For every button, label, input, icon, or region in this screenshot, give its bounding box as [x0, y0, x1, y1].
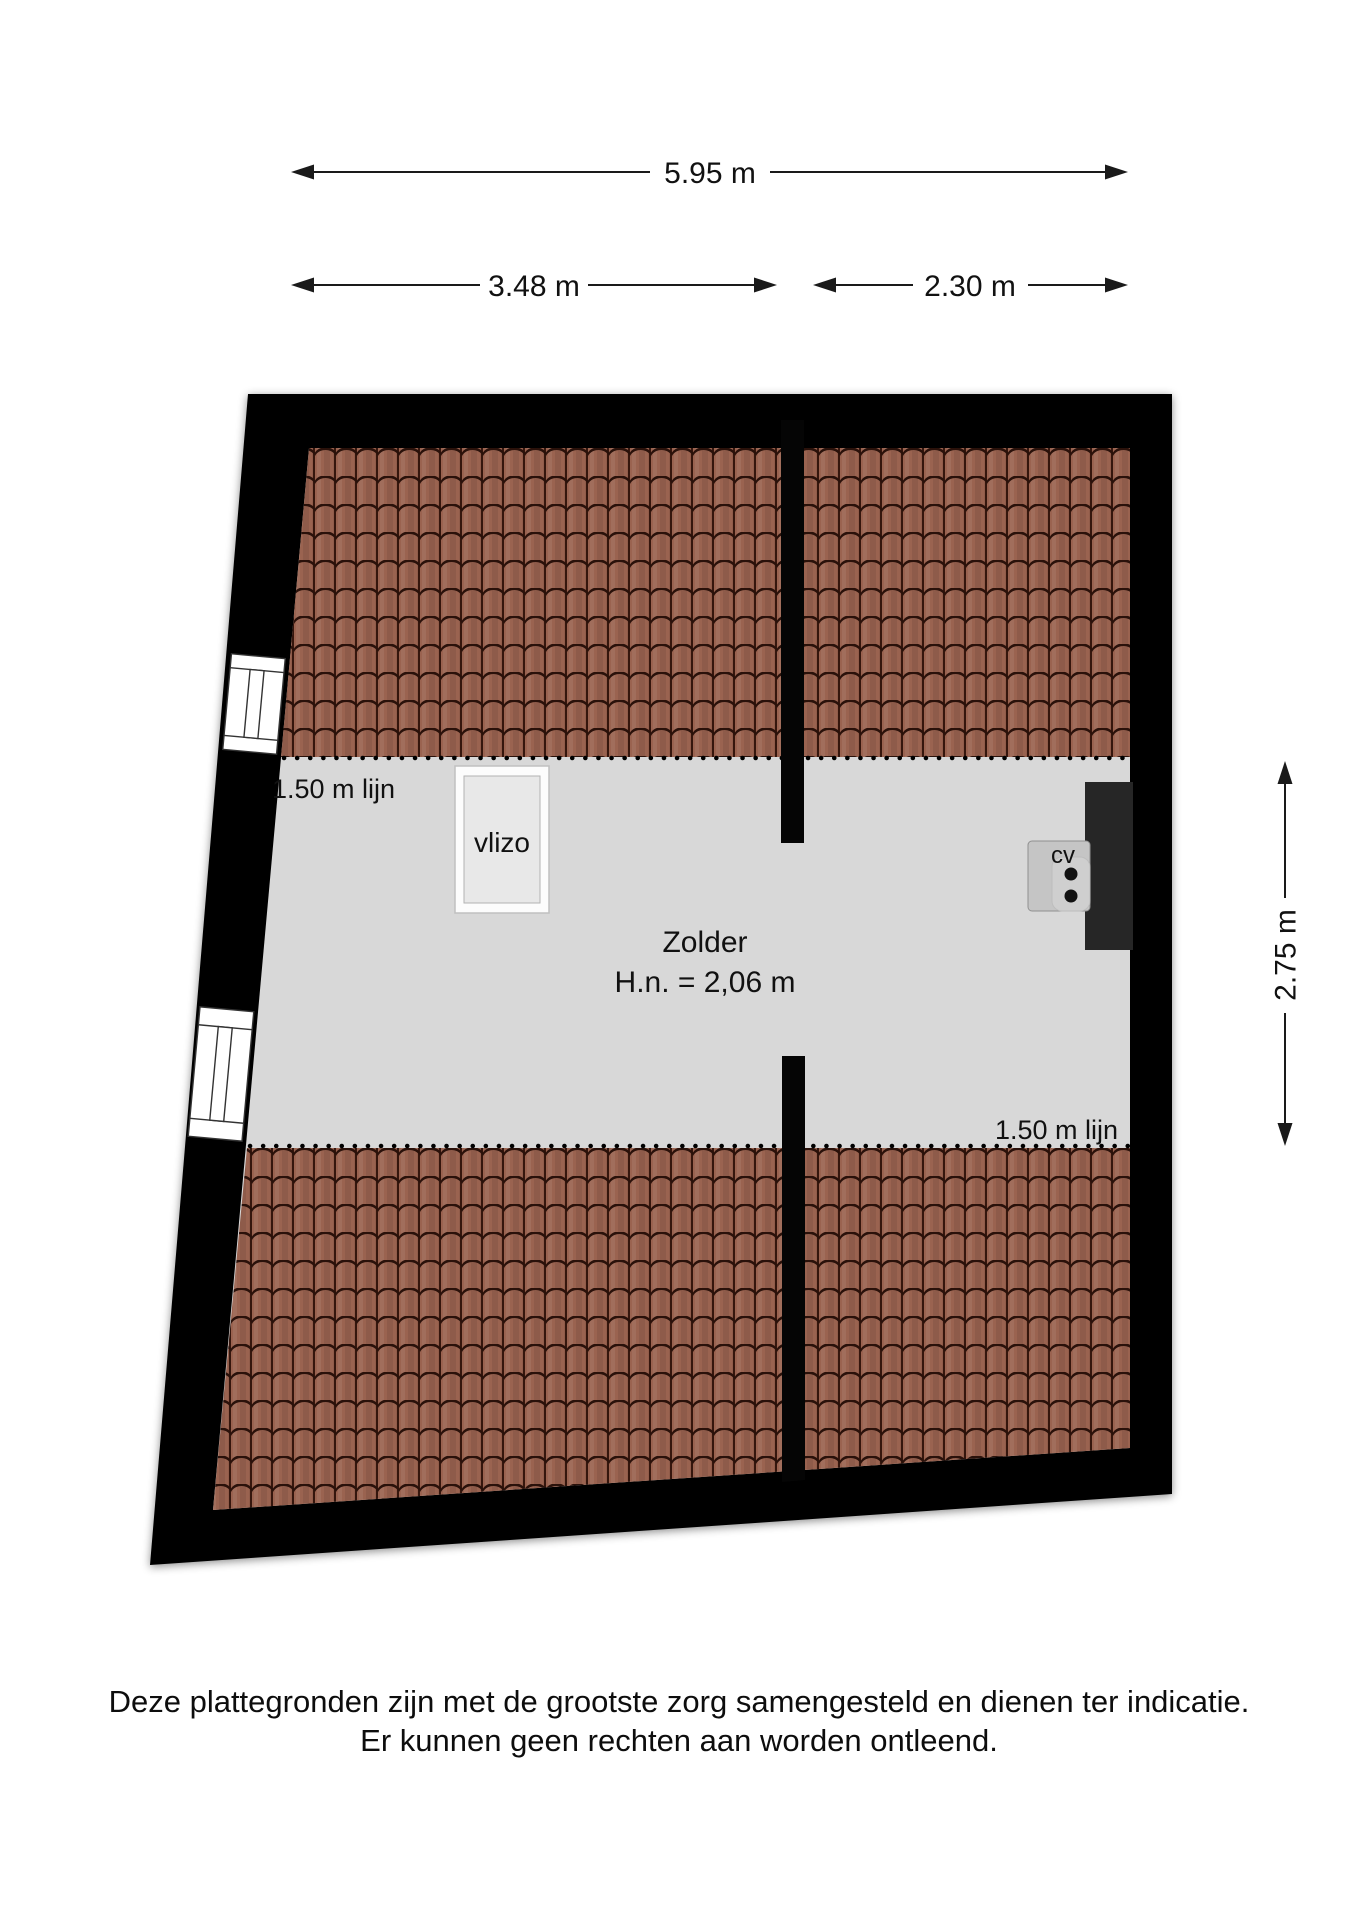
arrowhead-left-icon: [291, 165, 314, 180]
vlizo-label: vlizo: [474, 827, 530, 858]
cv-knob-icon: [1065, 890, 1078, 903]
divider-wall-upper: [781, 420, 804, 843]
dimension-height-right-label: 2.75 m: [1270, 909, 1303, 1001]
arrowhead-left-icon: [813, 278, 836, 293]
footer-disclaimer-line1: Deze plattegronden zijn met de grootste …: [109, 1684, 1250, 1719]
window-lower: [188, 1007, 254, 1141]
room-name-label: Zolder: [662, 926, 747, 959]
cv-label: cv: [1051, 842, 1075, 869]
arrowhead-down-icon: [1278, 1123, 1293, 1146]
cv-knob-icon: [1065, 868, 1078, 881]
arrowhead-left-icon: [291, 278, 314, 293]
knee-wall-label-left: 1.50 m lijn: [272, 774, 395, 804]
knee-wall-label-right: 1.50 m lijn: [995, 1115, 1118, 1145]
dimension-width-left-label: 3.48 m: [488, 270, 580, 303]
arrowhead-right-icon: [1105, 278, 1128, 293]
floor-plan: 5.95 m 3.48 m 2.30 m 2.75 m vlizo: [0, 0, 1358, 1920]
window-upper: [223, 654, 285, 754]
dimension-width-right-label: 2.30 m: [924, 270, 1016, 303]
roof-area-upper: [281, 448, 1130, 757]
roof-area-lower: [213, 1148, 1130, 1510]
chimney-block: [1085, 782, 1133, 950]
arrowhead-right-icon: [754, 278, 777, 293]
dimension-total-width-label: 5.95 m: [664, 157, 756, 190]
divider-wall-lower: [782, 1056, 805, 1482]
footer-disclaimer-line2: Er kunnen geen rechten aan worden ontlee…: [360, 1723, 998, 1758]
arrowhead-right-icon: [1105, 165, 1128, 180]
ceiling-height-label: H.n. = 2,06 m: [615, 966, 796, 999]
arrowhead-up-icon: [1278, 761, 1293, 784]
